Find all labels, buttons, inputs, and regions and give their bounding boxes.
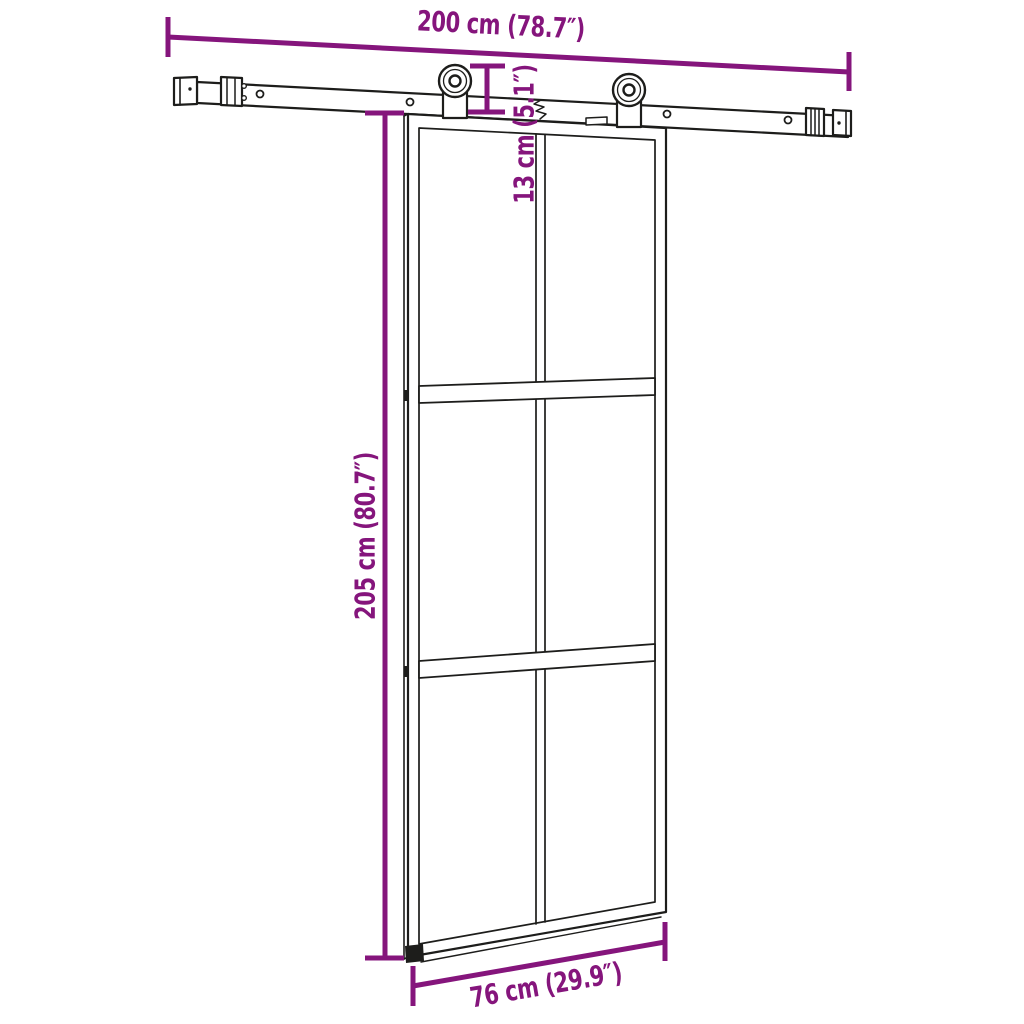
divider-edge-mark-lower bbox=[404, 666, 409, 677]
glass-door bbox=[404, 114, 666, 963]
anti-jump-bracket bbox=[586, 117, 607, 125]
door-height-label: 205 cm (80.7″) bbox=[349, 452, 382, 620]
axle-bolt bbox=[624, 85, 635, 96]
drop-height-label: 13 cm (5.1″) bbox=[508, 64, 541, 203]
rail-end-cap-right bbox=[833, 110, 851, 136]
rail-bracket-right bbox=[806, 108, 824, 136]
axle-bolt bbox=[450, 76, 461, 87]
divider-edge-mark-upper bbox=[404, 390, 409, 401]
floor-guide-foot bbox=[405, 944, 424, 963]
rail-end-cap-left bbox=[174, 77, 197, 105]
rail-bracket-left bbox=[221, 77, 246, 106]
roller-hanger-right bbox=[613, 74, 645, 127]
roller-hanger-left bbox=[439, 65, 471, 118]
door-frame bbox=[408, 114, 666, 957]
diagram-canvas: 200 cm (78.7″) 205 cm (80.7″) 13 cm (5.1… bbox=[0, 0, 1024, 1024]
